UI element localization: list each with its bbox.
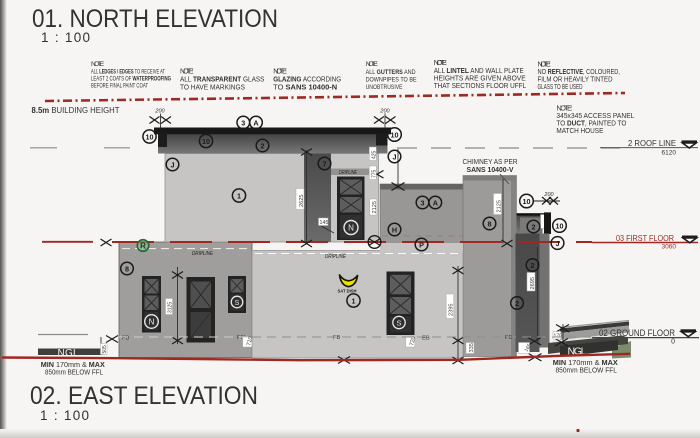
svg-text:850mm BELOW FFL: 850mm BELOW FFL <box>45 368 103 377</box>
svg-text:A: A <box>433 199 438 208</box>
svg-text:FB: FB <box>333 335 341 341</box>
svg-text:CHIMNEY AS PER: CHIMNEY AS PER <box>463 159 518 166</box>
svg-text:ALL TRANSPARENT GLASS: ALL TRANSPARENT GLASS <box>180 76 265 83</box>
svg-text:NOTE:: NOTE: <box>180 68 194 75</box>
svg-text:GLASS TO BE USED: GLASS TO BE USED <box>538 84 583 91</box>
svg-text:1: 1 <box>237 192 241 201</box>
svg-text:145: 145 <box>320 220 329 226</box>
svg-text:MATCH HOUSE: MATCH HOUSE <box>556 126 603 135</box>
svg-text:505: 505 <box>102 345 108 354</box>
svg-text:775: 775 <box>371 169 377 178</box>
svg-text:6120: 6120 <box>662 150 677 157</box>
svg-text:10: 10 <box>391 131 399 140</box>
svg-text:2395: 2395 <box>449 304 455 316</box>
svg-text:DOWNPIPES TO BE: DOWNPIPES TO BE <box>366 77 417 84</box>
svg-text:8.5m BUILDING HEIGHT: 8.5m BUILDING HEIGHT <box>32 106 120 115</box>
svg-text:2: 2 <box>531 261 535 270</box>
svg-text:R: R <box>140 242 146 251</box>
svg-text:2625: 2625 <box>299 195 305 207</box>
svg-text:1 : 100: 1 : 100 <box>40 408 89 423</box>
svg-text:3: 3 <box>241 119 245 128</box>
svg-text:NO REFLECTIVE, COLOURED,: NO REFLECTIVE, COLOURED, <box>538 69 621 76</box>
svg-text:10: 10 <box>556 222 564 231</box>
svg-text:THAT SECTIONS FLOOR UFFL: THAT SECTIONS FLOOR UFFL <box>434 83 527 90</box>
svg-text:S: S <box>235 300 240 307</box>
svg-text:EB: EB <box>422 336 430 342</box>
svg-text:J: J <box>393 153 397 162</box>
svg-text:BEFORE FINAL PAINT COAT: BEFORE FINAL PAINT COAT <box>91 83 148 90</box>
svg-text:850mm BELOW FFL: 850mm BELOW FFL <box>556 366 618 375</box>
svg-text:NOTE:: NOTE: <box>273 68 287 75</box>
svg-text:FB: FB <box>505 335 513 341</box>
svg-text:3125: 3125 <box>168 302 174 313</box>
svg-text:ALL LEDGES \ EDGES TO RECEIVE: ALL LEDGES \ EDGES TO RECEIVE AT <box>91 68 165 75</box>
svg-text:3: 3 <box>421 199 425 208</box>
svg-text:DRIPLINE: DRIPLINE <box>339 170 358 176</box>
svg-text:TO HAVE MARKINGS: TO HAVE MARKINGS <box>180 84 245 91</box>
svg-text:03 FIRST FLOOR: 03 FIRST FLOOR <box>616 233 674 243</box>
svg-text:NOTE:: NOTE: <box>434 60 447 67</box>
svg-text:S: S <box>396 318 401 327</box>
svg-text:ALL LINTEL AND WALL PLATE: ALL LINTEL AND WALL PLATE <box>434 68 524 75</box>
svg-text:1: 1 <box>352 297 356 306</box>
svg-text:J: J <box>556 239 560 248</box>
svg-text:FB: FB <box>122 336 130 342</box>
svg-text:N: N <box>149 318 155 327</box>
svg-text:2125: 2125 <box>372 201 378 213</box>
svg-text:2: 2 <box>515 299 519 308</box>
svg-text:10: 10 <box>146 133 154 142</box>
svg-text:335: 335 <box>469 343 475 352</box>
svg-text:NOTE:: NOTE: <box>538 62 551 69</box>
svg-text:N: N <box>348 224 354 233</box>
svg-text:02. EAST ELEVATION: 02. EAST ELEVATION <box>30 382 258 410</box>
svg-text:ALL GUTTERS AND: ALL GUTTERS AND <box>366 69 416 76</box>
svg-text:DRIPLINE: DRIPLINE <box>325 254 346 260</box>
svg-text:A: A <box>253 119 258 128</box>
svg-text:2: 2 <box>261 142 265 151</box>
svg-text:HEIGHTS ARE GIVEN ABOVE: HEIGHTS ARE GIVEN ABOVE <box>434 76 526 83</box>
svg-text:LEAST 2 COATS OF WATERPROOFING: LEAST 2 COATS OF WATERPROOFING <box>91 76 171 83</box>
svg-text:200: 200 <box>379 109 390 115</box>
svg-text:DRIPLINE: DRIPLINE <box>192 251 213 257</box>
svg-text:1 : 100: 1 : 100 <box>41 30 90 45</box>
svg-text:H: H <box>392 226 397 235</box>
svg-text:10: 10 <box>523 197 531 206</box>
svg-text:SANS 10400-V: SANS 10400-V <box>467 167 514 174</box>
svg-text:UNOBTRUSIVE: UNOBTRUSIVE <box>366 84 403 91</box>
svg-text:P: P <box>419 241 424 250</box>
svg-text:02 GROUND FLOOR: 02 GROUND FLOOR <box>599 328 675 338</box>
svg-text:200: 200 <box>154 109 165 115</box>
svg-text:J: J <box>171 161 175 170</box>
svg-text:NOTE:: NOTE: <box>366 61 379 68</box>
svg-text:8: 8 <box>488 220 492 229</box>
svg-text:GLAZING ACCORDING: GLAZING ACCORDING <box>273 76 341 83</box>
svg-text:FILM OR HEAVILY TINTED: FILM OR HEAVILY TINTED <box>538 77 613 84</box>
svg-text:2695: 2695 <box>530 277 536 289</box>
svg-text:NOTE:: NOTE: <box>91 61 105 68</box>
svg-text:2125: 2125 <box>497 200 503 212</box>
svg-text:2 ROOF LINE: 2 ROOF LINE <box>628 138 676 148</box>
svg-text:10: 10 <box>202 137 210 146</box>
svg-text:7: 7 <box>323 160 327 169</box>
svg-text:3060: 3060 <box>662 243 677 250</box>
svg-text:TO SANS 10400-N: TO SANS 10400-N <box>273 84 337 91</box>
svg-text:01. NORTH ELEVATION: 01. NORTH ELEVATION <box>32 5 278 33</box>
svg-text:2: 2 <box>532 223 536 232</box>
svg-text:0: 0 <box>671 339 675 346</box>
svg-text:200: 200 <box>543 192 554 198</box>
svg-text:425: 425 <box>371 150 377 159</box>
svg-text:8: 8 <box>125 265 129 274</box>
